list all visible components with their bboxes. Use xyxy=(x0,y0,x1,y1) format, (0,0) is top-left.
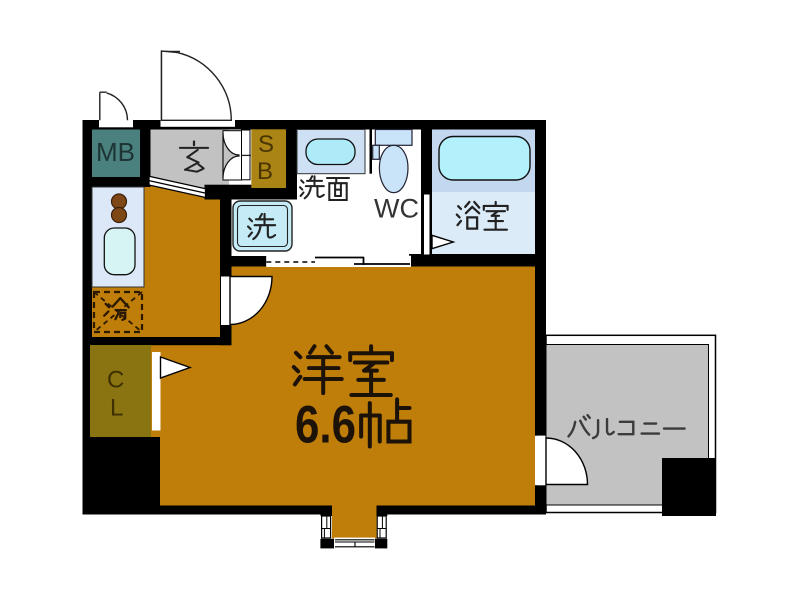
svg-text:S: S xyxy=(258,131,274,158)
svg-text:B: B xyxy=(257,158,273,185)
svg-text:WC: WC xyxy=(374,194,419,224)
svg-text:L: L xyxy=(110,395,123,422)
svg-text:6.6: 6.6 xyxy=(295,396,356,455)
svg-text:MB: MB xyxy=(96,137,135,167)
svg-text:C: C xyxy=(107,367,124,394)
